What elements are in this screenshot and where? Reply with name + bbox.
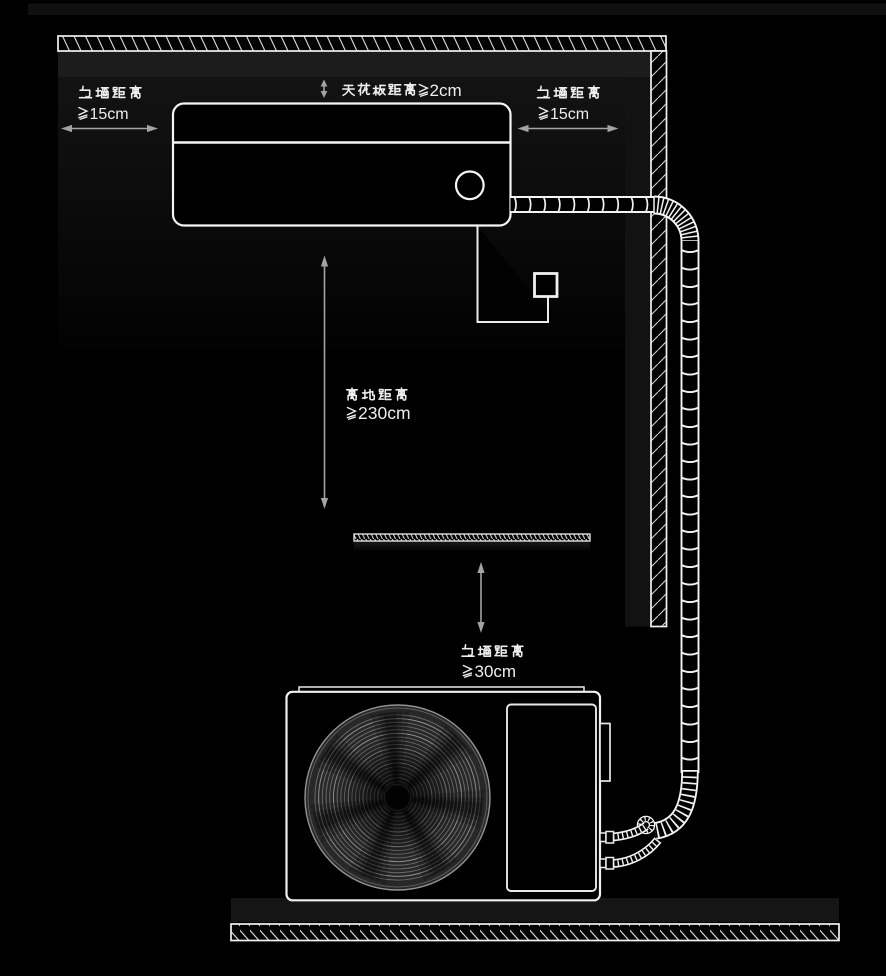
svg-text:15cm: 15cm	[90, 106, 129, 123]
svg-text:15cm: 15cm	[550, 106, 589, 123]
svg-text:2cm: 2cm	[430, 81, 462, 100]
svg-text:230cm: 230cm	[358, 403, 411, 423]
svg-text:30cm: 30cm	[475, 662, 517, 681]
